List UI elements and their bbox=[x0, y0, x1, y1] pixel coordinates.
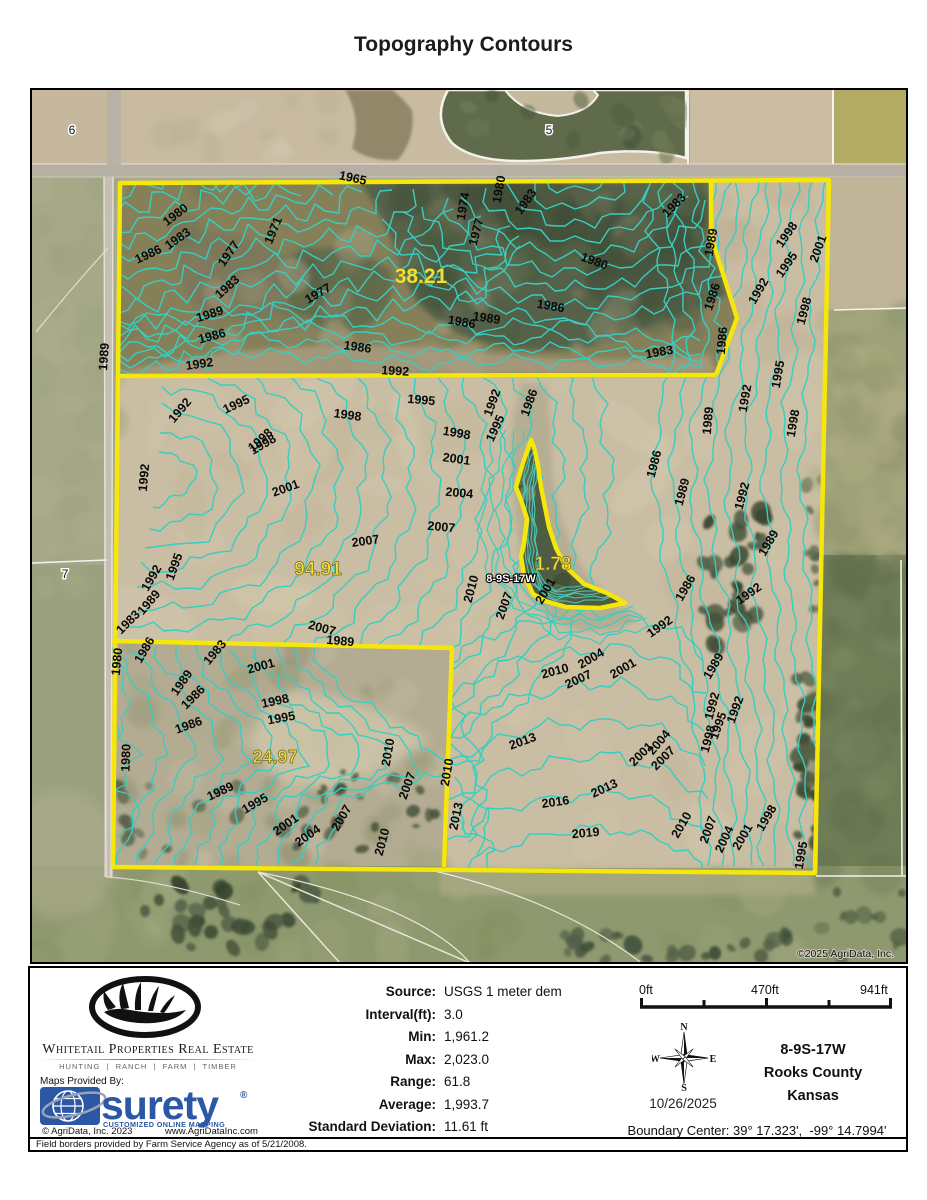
svg-text:8-9S-17W: 8-9S-17W bbox=[486, 573, 536, 585]
svg-text:5: 5 bbox=[546, 123, 553, 137]
svg-text:1992: 1992 bbox=[136, 463, 152, 492]
svg-text:7: 7 bbox=[62, 567, 69, 581]
svg-text:1980: 1980 bbox=[119, 744, 134, 772]
svg-text:W: W bbox=[652, 1054, 660, 1065]
svg-text:S: S bbox=[681, 1083, 687, 1092]
svg-text:2019: 2019 bbox=[571, 825, 600, 841]
svg-text:1989: 1989 bbox=[700, 406, 716, 435]
svg-text:1989: 1989 bbox=[96, 342, 112, 371]
svg-text:1989: 1989 bbox=[326, 633, 355, 649]
svg-text:2004: 2004 bbox=[445, 485, 474, 501]
svg-text:1980: 1980 bbox=[109, 647, 125, 676]
svg-text:1.78: 1.78 bbox=[535, 554, 572, 575]
svg-text:38.21: 38.21 bbox=[395, 265, 448, 288]
svg-text:94.91: 94.91 bbox=[294, 559, 342, 580]
svg-text:1986: 1986 bbox=[714, 326, 730, 355]
svg-text:©2025 AgriData, Inc.: ©2025 AgriData, Inc. bbox=[797, 948, 894, 960]
svg-text:24.97: 24.97 bbox=[252, 747, 297, 767]
svg-text:N: N bbox=[680, 1022, 688, 1033]
svg-text:6: 6 bbox=[69, 123, 76, 137]
svg-text:E: E bbox=[710, 1054, 716, 1065]
svg-text:1995: 1995 bbox=[407, 392, 436, 408]
svg-text:1992: 1992 bbox=[381, 363, 410, 378]
svg-text:2007: 2007 bbox=[427, 519, 456, 535]
